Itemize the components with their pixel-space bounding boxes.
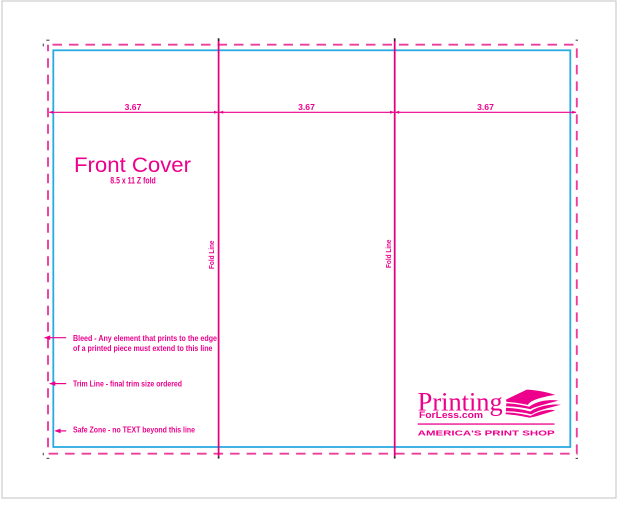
svg-text:8.5 x 11 Z fold: 8.5 x 11 Z fold [110,175,156,185]
svg-text:AMERICA'S PRINT SHOP: AMERICA'S PRINT SHOP [418,429,555,438]
svg-text:Front Cover: Front Cover [74,153,191,177]
svg-text:of a printed piece must extend: of a printed piece must extend to this l… [73,343,213,353]
svg-text:3.67: 3.67 [298,102,315,112]
svg-text:Fold Line: Fold Line [386,239,393,268]
svg-text:Safe Zone - no TEXT beyond thi: Safe Zone - no TEXT beyond this line [73,425,195,435]
svg-text:3.67: 3.67 [125,102,142,112]
svg-text:ForLess.com: ForLess.com [419,410,483,420]
svg-text:Bleed - Any element that print: Bleed - Any element that prints to the e… [73,333,217,343]
svg-text:Trim Line - final trim size or: Trim Line - final trim size ordered [73,378,182,388]
svg-text:3.67: 3.67 [477,102,494,112]
svg-text:Fold Line: Fold Line [209,240,216,269]
